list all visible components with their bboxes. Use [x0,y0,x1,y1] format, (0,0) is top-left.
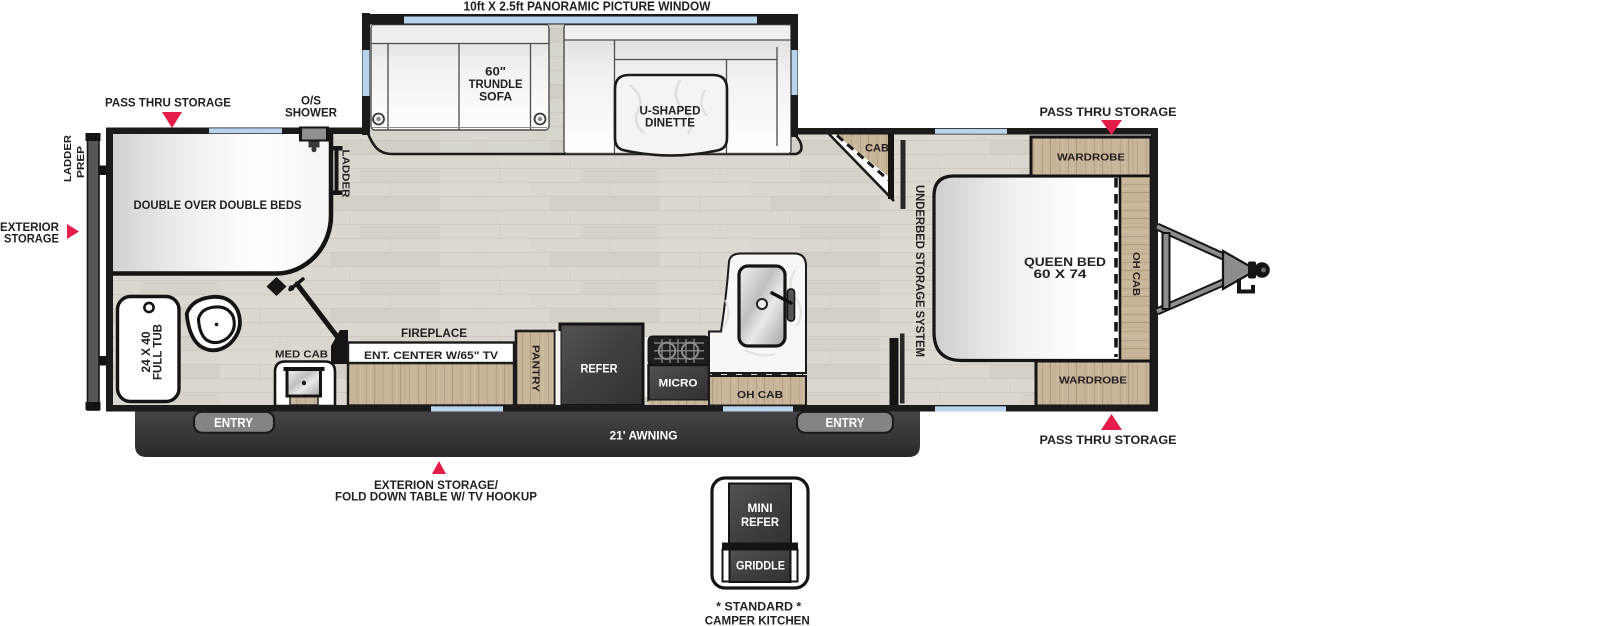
svg-text:REFER: REFER [741,517,780,529]
svg-text:21' AWNING: 21' AWNING [610,428,678,442]
svg-text:UNDERBED STORAGE SYSTEM: UNDERBED STORAGE SYSTEM [913,185,925,357]
svg-text:SOFA: SOFA [479,92,512,104]
svg-text:ENT. CENTER W/65" TV: ENT. CENTER W/65" TV [364,350,499,362]
svg-text:STORAGE: STORAGE [4,233,59,245]
svg-text:DINETTE: DINETTE [645,118,695,130]
svg-text:LADDER: LADDER [62,135,74,182]
svg-text:MED CAB: MED CAB [275,348,328,360]
svg-text:WARDROBE: WARDROBE [1057,152,1125,164]
svg-text:QUEEN BED: QUEEN BED [1024,257,1106,269]
svg-text:U-SHAPED: U-SHAPED [640,106,701,118]
svg-text:GRIDDLE: GRIDDLE [736,561,785,573]
svg-text:O/S: O/S [301,95,321,107]
svg-text:ENTRY: ENTRY [214,415,253,430]
svg-text:60 X 74: 60 X 74 [1034,269,1088,281]
svg-text:PREP: PREP [75,146,87,178]
svg-text:REFER: REFER [581,364,619,376]
svg-text:SHOWER: SHOWER [285,107,338,119]
svg-text:60": 60" [485,67,506,79]
svg-text:PANTRY: PANTRY [530,345,542,392]
svg-text:TRUNDLE: TRUNDLE [469,79,523,91]
svg-text:WARDROBE: WARDROBE [1059,375,1127,387]
svg-text:10ft X 2.5ft PANORAMIC PICTURE: 10ft X 2.5ft PANORAMIC PICTURE WINDOW [464,0,712,14]
svg-text:CAMPER KITCHEN: CAMPER KITCHEN [705,613,810,626]
svg-text:FIREPLACE: FIREPLACE [401,328,467,340]
svg-text:24 X 40: 24 X 40 [141,332,153,373]
svg-text:EXTERION STORAGE/: EXTERION STORAGE/ [374,480,499,492]
svg-text:FOLD DOWN TABLE W/ TV HOOKUP: FOLD DOWN TABLE W/ TV HOOKUP [335,491,537,503]
svg-text:PASS THRU STORAGE: PASS THRU STORAGE [105,98,231,110]
svg-text:PASS THRU STORAGE: PASS THRU STORAGE [1040,435,1177,447]
svg-text:FULL TUB: FULL TUB [153,324,165,380]
svg-text:OH CAB: OH CAB [1130,252,1142,296]
svg-text:OH CAB: OH CAB [737,389,783,401]
svg-text:EXTERIOR: EXTERIOR [0,222,60,234]
svg-text:DOUBLE OVER DOUBLE BEDS: DOUBLE OVER DOUBLE BEDS [134,200,302,212]
svg-text:* STANDARD *: * STANDARD * [716,599,801,613]
svg-text:PASS THRU STORAGE: PASS THRU STORAGE [1040,107,1177,119]
svg-text:ENTRY: ENTRY [826,415,865,430]
svg-text:LADDER: LADDER [340,150,352,198]
svg-text:MINI: MINI [748,503,773,515]
svg-text:CAB: CAB [865,142,889,154]
svg-text:MICRO: MICRO [659,378,698,390]
